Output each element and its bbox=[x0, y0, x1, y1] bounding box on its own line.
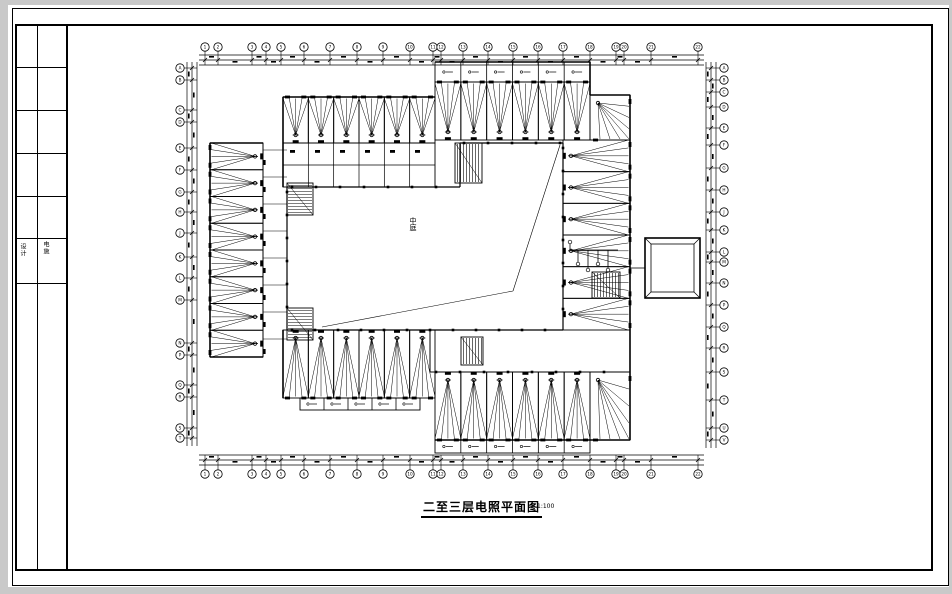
axis-bubble: 2 bbox=[214, 43, 222, 51]
stair-left-upper bbox=[287, 183, 313, 215]
axis-bubble: M bbox=[176, 296, 184, 304]
svg-text:H: H bbox=[178, 210, 181, 215]
axis-bubble: E bbox=[176, 144, 184, 152]
axis-bubble: G bbox=[176, 188, 184, 196]
svg-text:10: 10 bbox=[407, 45, 413, 50]
axis-bubble: 15 bbox=[509, 43, 517, 51]
axis-bubble: 7 bbox=[326, 470, 334, 478]
svg-text:19: 19 bbox=[613, 45, 619, 50]
axis-bubble: S bbox=[720, 368, 728, 376]
svg-text:18: 18 bbox=[587, 45, 593, 50]
svg-text:K: K bbox=[179, 255, 182, 260]
axis-bubble: 22 bbox=[694, 470, 702, 478]
svg-text:T: T bbox=[722, 398, 726, 403]
axis-bubble: 5 bbox=[277, 43, 285, 51]
svg-text:20: 20 bbox=[621, 45, 627, 50]
svg-text:B: B bbox=[723, 78, 726, 83]
axis-bubble: B bbox=[720, 76, 728, 84]
axis-bubble: 14 bbox=[484, 470, 492, 478]
room-corner-bottom-right bbox=[590, 372, 631, 441]
axis-bubble: 22 bbox=[694, 43, 702, 51]
axis-bubble: C bbox=[720, 88, 728, 96]
svg-text:M: M bbox=[178, 298, 182, 303]
svg-text:E: E bbox=[179, 146, 182, 151]
axis-bubble: N bbox=[176, 339, 184, 347]
svg-text:6: 6 bbox=[303, 45, 306, 50]
svg-text:7: 7 bbox=[329, 45, 332, 50]
svg-text:5: 5 bbox=[280, 45, 283, 50]
axis-bubble: C bbox=[176, 106, 184, 114]
cad-sheet: 设计 电施 1234567891011121314151617181920212… bbox=[0, 0, 952, 594]
axis-bubble: V bbox=[720, 436, 728, 444]
svg-text:22: 22 bbox=[695, 45, 701, 50]
axis-bubble: D bbox=[176, 118, 184, 126]
rooms-right-wing bbox=[563, 140, 631, 330]
axis-bubble: P bbox=[720, 301, 728, 309]
svg-text:U: U bbox=[722, 426, 725, 431]
svg-text:13: 13 bbox=[460, 45, 466, 50]
svg-text:16: 16 bbox=[535, 472, 541, 477]
axis-bubble: F bbox=[720, 141, 728, 149]
axis-bubble: L bbox=[720, 248, 728, 256]
axis-bubble: P bbox=[176, 351, 184, 359]
axis-bubble: J bbox=[176, 229, 184, 237]
axis-bubble: 8 bbox=[353, 43, 361, 51]
axis-bubble: S bbox=[176, 424, 184, 432]
svg-text:18: 18 bbox=[587, 472, 593, 477]
axis-bubble: 17 bbox=[559, 470, 567, 478]
svg-text:A: A bbox=[723, 66, 726, 71]
building-outline bbox=[210, 62, 630, 440]
svg-text:R: R bbox=[179, 395, 182, 400]
svg-text:K: K bbox=[723, 228, 726, 233]
svg-text:S: S bbox=[179, 426, 182, 431]
axis-bubble: T bbox=[176, 434, 184, 442]
courtyard-label: 中庭 bbox=[409, 217, 416, 231]
svg-text:B: B bbox=[179, 78, 182, 83]
svg-text:J: J bbox=[178, 231, 180, 236]
svg-text:19: 19 bbox=[613, 472, 619, 477]
svg-text:1: 1 bbox=[204, 472, 207, 477]
svg-text:10: 10 bbox=[407, 472, 413, 477]
axis-bubble: 16 bbox=[534, 470, 542, 478]
axis-bubble: 1 bbox=[201, 470, 209, 478]
axis-bubble: 7 bbox=[326, 43, 334, 51]
axis-bubble: 11 bbox=[429, 43, 437, 51]
svg-text:D: D bbox=[722, 105, 725, 110]
svg-text:4: 4 bbox=[265, 45, 268, 50]
axis-bubble: G bbox=[720, 164, 728, 172]
stair-top-center bbox=[455, 143, 482, 183]
axis-bubble: 21 bbox=[647, 470, 655, 478]
svg-text:A: A bbox=[179, 66, 182, 71]
rooms-top-left bbox=[283, 96, 435, 143]
svg-text:G: G bbox=[178, 190, 181, 195]
axis-bubble: J bbox=[720, 208, 728, 216]
svg-text:N: N bbox=[178, 341, 181, 346]
svg-text:9: 9 bbox=[382, 472, 385, 477]
svg-text:2: 2 bbox=[217, 45, 220, 50]
svg-text:D: D bbox=[178, 120, 181, 125]
svg-text:2: 2 bbox=[217, 472, 220, 477]
bottom-hall bbox=[430, 330, 630, 373]
drawing-title: 二至三层电照平面图 bbox=[421, 498, 542, 518]
axis-bubble: 6 bbox=[300, 43, 308, 51]
axis-bubble: 3 bbox=[248, 470, 256, 478]
svg-text:12: 12 bbox=[438, 45, 444, 50]
axis-bubble: 11 bbox=[429, 470, 437, 478]
axis-bubble: U bbox=[720, 424, 728, 432]
svg-text:1: 1 bbox=[204, 45, 207, 50]
axis-bubble: 21 bbox=[647, 43, 655, 51]
axis-bubble: 20 bbox=[620, 470, 628, 478]
svg-text:17: 17 bbox=[560, 45, 566, 50]
axis-bubble: 10 bbox=[406, 470, 414, 478]
svg-text:J: J bbox=[722, 210, 724, 215]
axis-bubble: 15 bbox=[509, 470, 517, 478]
axis-bubble: 19 bbox=[612, 470, 620, 478]
svg-text:12: 12 bbox=[438, 472, 444, 477]
axis-bubble: L bbox=[176, 274, 184, 282]
rooms-left-wing bbox=[209, 143, 263, 357]
axis-bubble: 2 bbox=[214, 470, 222, 478]
axis-bubble: Q bbox=[176, 381, 184, 389]
svg-text:E: E bbox=[723, 126, 726, 131]
stair-bottom-center bbox=[461, 337, 483, 365]
axis-bubble: H bbox=[176, 208, 184, 216]
axis-bubble: K bbox=[176, 253, 184, 261]
axis-bubble: R bbox=[720, 344, 728, 352]
axis-bubble: 9 bbox=[379, 470, 387, 478]
axis-bubble: 10 bbox=[406, 43, 414, 51]
axis-bubble: 6 bbox=[300, 470, 308, 478]
axis-band-bottom: 12345678910111213141516171819202122 bbox=[199, 455, 704, 478]
balcony-bottom-left bbox=[300, 398, 420, 410]
axis-bubble: 4 bbox=[262, 43, 270, 51]
svg-text:21: 21 bbox=[648, 45, 654, 50]
axis-bubble: 9 bbox=[379, 43, 387, 51]
axis-bubble: 8 bbox=[353, 470, 361, 478]
axis-bubble: 16 bbox=[534, 43, 542, 51]
axis-bubble: Q bbox=[720, 323, 728, 331]
svg-text:G: G bbox=[722, 166, 725, 171]
svg-text:3: 3 bbox=[251, 45, 254, 50]
svg-text:H: H bbox=[722, 188, 725, 193]
courtyard bbox=[286, 142, 565, 332]
axis-bubble: 12 bbox=[437, 43, 445, 51]
subband-top-left bbox=[283, 143, 435, 187]
svg-text:9: 9 bbox=[382, 45, 385, 50]
axis-bubble: D bbox=[720, 103, 728, 111]
axis-band-left: ABCDEFGHJKLMNPQRST bbox=[176, 62, 197, 446]
axis-bubble: R bbox=[176, 393, 184, 401]
rooms-top-right bbox=[435, 81, 590, 140]
axis-bubble: A bbox=[720, 64, 728, 72]
svg-text:16: 16 bbox=[535, 45, 541, 50]
rooms-bottom-right bbox=[435, 372, 590, 441]
axis-bubble: 13 bbox=[459, 43, 467, 51]
svg-text:8: 8 bbox=[356, 472, 359, 477]
svg-text:8: 8 bbox=[356, 45, 359, 50]
svg-text:N: N bbox=[722, 281, 725, 286]
axis-bubble: 5 bbox=[277, 470, 285, 478]
svg-text:6: 6 bbox=[303, 472, 306, 477]
svg-text:21: 21 bbox=[648, 472, 654, 477]
svg-text:C: C bbox=[723, 90, 726, 95]
axis-bubble: 20 bbox=[620, 43, 628, 51]
balcony-bottom-right bbox=[435, 440, 590, 453]
axis-bubble: A bbox=[176, 64, 184, 72]
elevator-detail bbox=[630, 238, 700, 298]
svg-text:3: 3 bbox=[251, 472, 254, 477]
axis-bubble: T bbox=[720, 396, 728, 404]
axis-bubble: E bbox=[720, 124, 728, 132]
svg-text:15: 15 bbox=[510, 45, 516, 50]
svg-text:11: 11 bbox=[430, 472, 436, 477]
axis-bubble: 1 bbox=[201, 43, 209, 51]
axis-bubble: M bbox=[720, 258, 728, 266]
svg-text:11: 11 bbox=[430, 45, 436, 50]
axis-bubble: 19 bbox=[612, 43, 620, 51]
axis-bubble: 3 bbox=[248, 43, 256, 51]
axis-bubble: 14 bbox=[484, 43, 492, 51]
svg-text:S: S bbox=[723, 370, 726, 375]
svg-text:5: 5 bbox=[280, 472, 283, 477]
axis-bubble: 13 bbox=[459, 470, 467, 478]
svg-text:14: 14 bbox=[485, 45, 491, 50]
svg-text:M: M bbox=[722, 260, 726, 265]
svg-text:15: 15 bbox=[510, 472, 516, 477]
axis-bubble: 12 bbox=[437, 470, 445, 478]
axis-bubble: H bbox=[720, 186, 728, 194]
axis-bubble: 18 bbox=[586, 470, 594, 478]
axis-bubble: B bbox=[176, 76, 184, 84]
axis-bubble: F bbox=[176, 166, 184, 174]
svg-text:20: 20 bbox=[621, 472, 627, 477]
stair-right bbox=[592, 272, 620, 298]
axis-bubble: K bbox=[720, 226, 728, 234]
svg-text:7: 7 bbox=[329, 472, 332, 477]
svg-text:4: 4 bbox=[265, 472, 268, 477]
drawing-scale-note: 1:100 bbox=[537, 503, 554, 510]
axis-band-right: ABCDEFGHJKLMNPQRSTUV bbox=[706, 62, 728, 448]
svg-text:T: T bbox=[178, 436, 182, 441]
axis-bubble: 4 bbox=[262, 470, 270, 478]
svg-text:14: 14 bbox=[485, 472, 491, 477]
svg-text:C: C bbox=[179, 108, 182, 113]
axis-bubble: 18 bbox=[586, 43, 594, 51]
svg-text:R: R bbox=[723, 346, 726, 351]
stair-left-lower bbox=[287, 308, 313, 340]
axis-bubble: N bbox=[720, 279, 728, 287]
svg-text:V: V bbox=[723, 438, 726, 443]
room-corner-top-right bbox=[590, 95, 631, 141]
svg-text:13: 13 bbox=[460, 472, 466, 477]
svg-text:17: 17 bbox=[560, 472, 566, 477]
svg-text:22: 22 bbox=[695, 472, 701, 477]
axis-bubble: 17 bbox=[559, 43, 567, 51]
